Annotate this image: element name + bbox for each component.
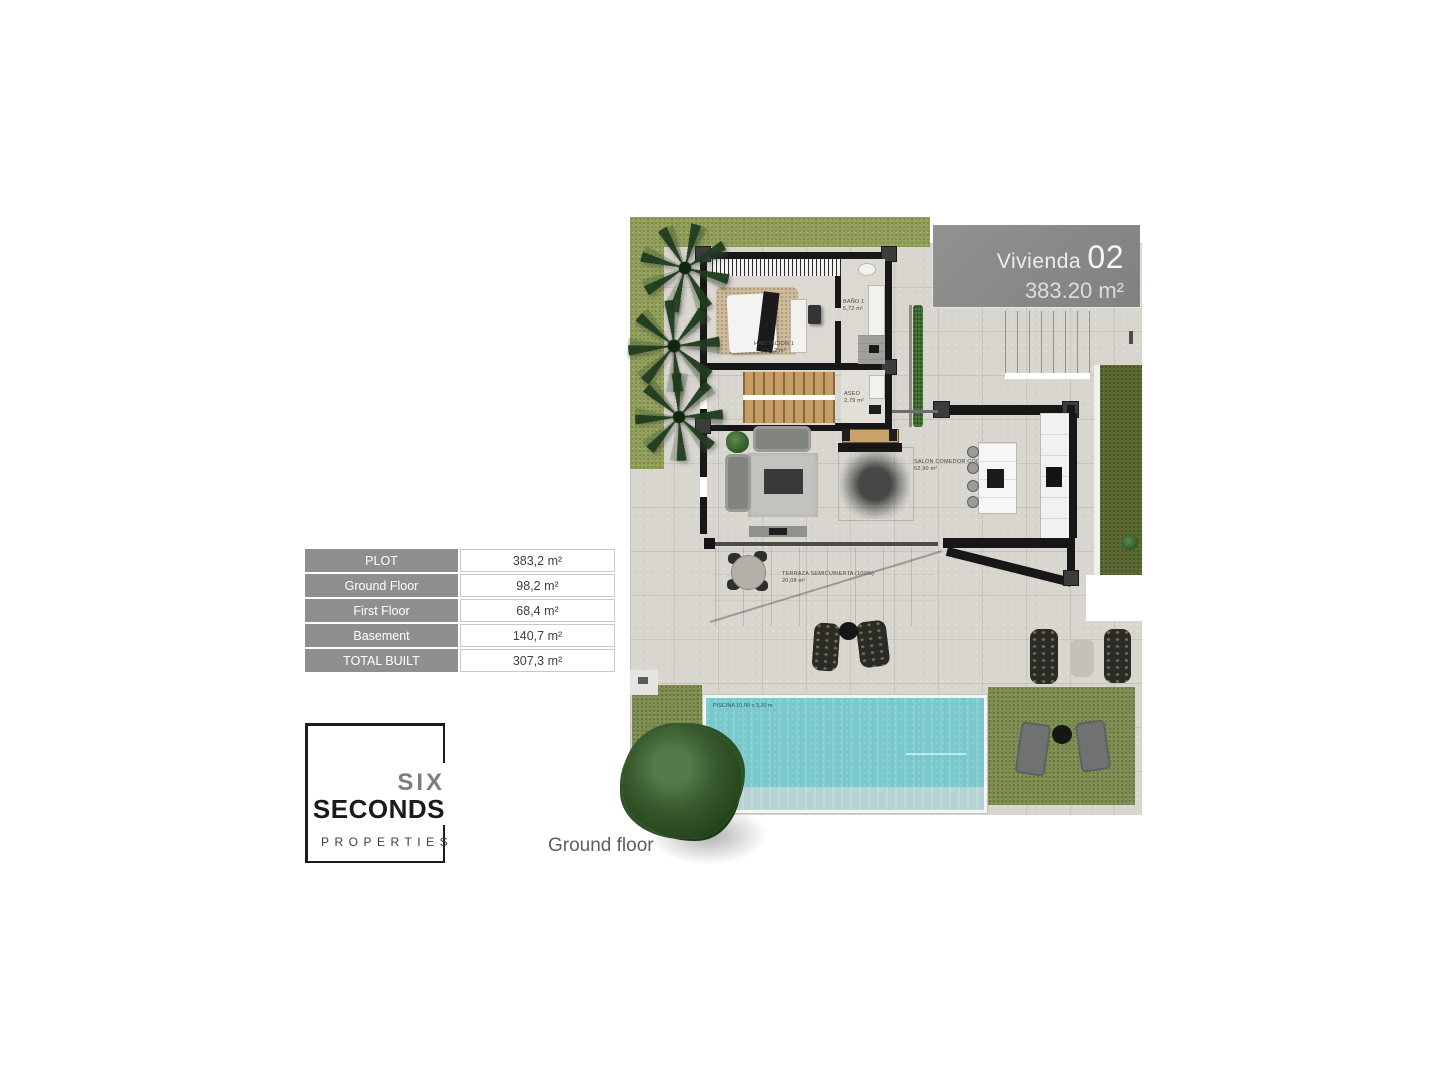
coffee-table bbox=[764, 469, 803, 494]
room-label-habitacion: HABITACION 1 13,12 m² bbox=[754, 341, 794, 354]
row-value: 140,7 m² bbox=[460, 624, 615, 647]
aseo-wc bbox=[869, 405, 881, 414]
stool-3 bbox=[967, 480, 979, 492]
table-row: PLOT 383,2 m² bbox=[305, 549, 617, 572]
tv-screen bbox=[769, 528, 787, 535]
tree bbox=[622, 723, 742, 839]
room-label-aseo: ASEO 2,79 m² bbox=[844, 391, 864, 404]
table-row: Ground Floor 98,2 m² bbox=[305, 574, 617, 597]
kitchen-unit-oven bbox=[1046, 467, 1062, 487]
floorplan: PISCINA 10,00 x 3,20 m HABITACION 1 13,1… bbox=[630, 215, 1160, 815]
sofa-vertical bbox=[725, 454, 751, 512]
row-value: 68,4 m² bbox=[460, 599, 615, 622]
stairs-landing bbox=[743, 395, 835, 400]
kitchen-hob bbox=[987, 469, 1004, 488]
logo-border-right-top bbox=[443, 723, 446, 763]
unit-badge: Vivienda 02 383.20 m² bbox=[933, 225, 1140, 307]
pergola-hatch bbox=[712, 259, 862, 276]
room-label-piscina: PISCINA 10,00 x 3,20 m bbox=[713, 703, 773, 709]
row-value: 98,2 m² bbox=[460, 574, 615, 597]
stool-2 bbox=[967, 462, 979, 474]
vertical-garden bbox=[913, 305, 923, 427]
terrace-table bbox=[731, 555, 766, 590]
stool-4 bbox=[967, 496, 979, 508]
logo-border-top bbox=[305, 723, 445, 726]
window-left-2 bbox=[700, 477, 707, 497]
indoor-plant bbox=[726, 431, 749, 453]
logo-border-bottom bbox=[305, 861, 445, 864]
room-label-bano: BAÑO 1 5,72 m² bbox=[843, 299, 864, 312]
exterior-stairs bbox=[1005, 311, 1090, 373]
lounger-right-1 bbox=[1030, 629, 1058, 684]
row-label: First Floor bbox=[305, 599, 458, 622]
area-table: PLOT 383,2 m² Ground Floor 98,2 m² First… bbox=[305, 549, 617, 674]
dining-table-set bbox=[840, 449, 910, 519]
company-logo: SIX SECONDS PROPERTIES bbox=[305, 723, 445, 863]
unit-name: Vivienda 02 bbox=[933, 239, 1124, 276]
living-glass-front bbox=[708, 542, 938, 546]
margin-top-right bbox=[930, 215, 1142, 224]
aseo-basin bbox=[869, 375, 885, 399]
entry-bench-cap-left bbox=[842, 429, 850, 441]
stool-1 bbox=[967, 446, 979, 458]
toilet bbox=[858, 263, 876, 276]
row-label: PLOT bbox=[305, 549, 458, 572]
row-label: Basement bbox=[305, 624, 458, 647]
unit-area: 383.20 m² bbox=[933, 278, 1124, 304]
table-row: First Floor 68,4 m² bbox=[305, 599, 617, 622]
pool-water bbox=[706, 698, 984, 787]
room-label-terraza: TERRAZA SEMICUBIERTA (100%) 20,08 m² bbox=[782, 571, 874, 584]
pillar-kitchen-3 bbox=[1063, 570, 1079, 586]
row-value: 383,2 m² bbox=[460, 549, 615, 572]
wall-bedroom-bottom bbox=[700, 363, 892, 370]
garden-bottom-right bbox=[988, 687, 1135, 805]
bath-vanity bbox=[868, 285, 885, 339]
margin-right-corner bbox=[1086, 575, 1160, 621]
pool: PISCINA 10,00 x 3,20 m bbox=[703, 695, 987, 813]
table-row: TOTAL BUILT 307,3 m² bbox=[305, 649, 617, 672]
logo-text-properties: PROPERTIES bbox=[321, 835, 453, 849]
lounger-right-2 bbox=[1104, 629, 1131, 683]
lounger-center-1 bbox=[811, 622, 840, 672]
unit-number: 02 bbox=[1087, 239, 1124, 275]
lounger-center-2 bbox=[855, 619, 890, 668]
floor-caption: Ground floor bbox=[548, 835, 654, 857]
wall-kitchen-bottom bbox=[943, 538, 1075, 548]
glass-front-post bbox=[704, 538, 715, 549]
row-label: TOTAL BUILT bbox=[305, 649, 458, 672]
logo-text-six: SIX bbox=[397, 769, 445, 797]
page: PISCINA 10,00 x 3,20 m HABITACION 1 13,1… bbox=[0, 0, 1440, 1080]
palm-tree-1 bbox=[640, 223, 730, 313]
mat-right bbox=[1070, 639, 1094, 677]
logo-text-seconds: SECONDS bbox=[313, 794, 445, 825]
entry-bench-cap-right bbox=[889, 429, 897, 441]
row-value: 307,3 m² bbox=[460, 649, 615, 672]
wall-thin-link bbox=[892, 410, 938, 413]
hedge-bush bbox=[1122, 535, 1138, 550]
wall-right-core bbox=[885, 252, 892, 452]
shower-pad-fixture bbox=[638, 677, 648, 684]
pool-step-line bbox=[906, 753, 966, 755]
glass-wall-line bbox=[909, 305, 912, 427]
bed-bench bbox=[808, 305, 821, 324]
gate-mark bbox=[1129, 331, 1133, 344]
shower-drain bbox=[869, 345, 879, 353]
sofa-horizontal bbox=[753, 426, 811, 452]
logo-border-left bbox=[305, 723, 308, 863]
table-row: Basement 140,7 m² bbox=[305, 624, 617, 647]
row-label: Ground Floor bbox=[305, 574, 458, 597]
side-table-center bbox=[839, 622, 858, 640]
exterior-stairs-edge bbox=[1005, 373, 1090, 379]
side-table-grass bbox=[1052, 725, 1072, 744]
